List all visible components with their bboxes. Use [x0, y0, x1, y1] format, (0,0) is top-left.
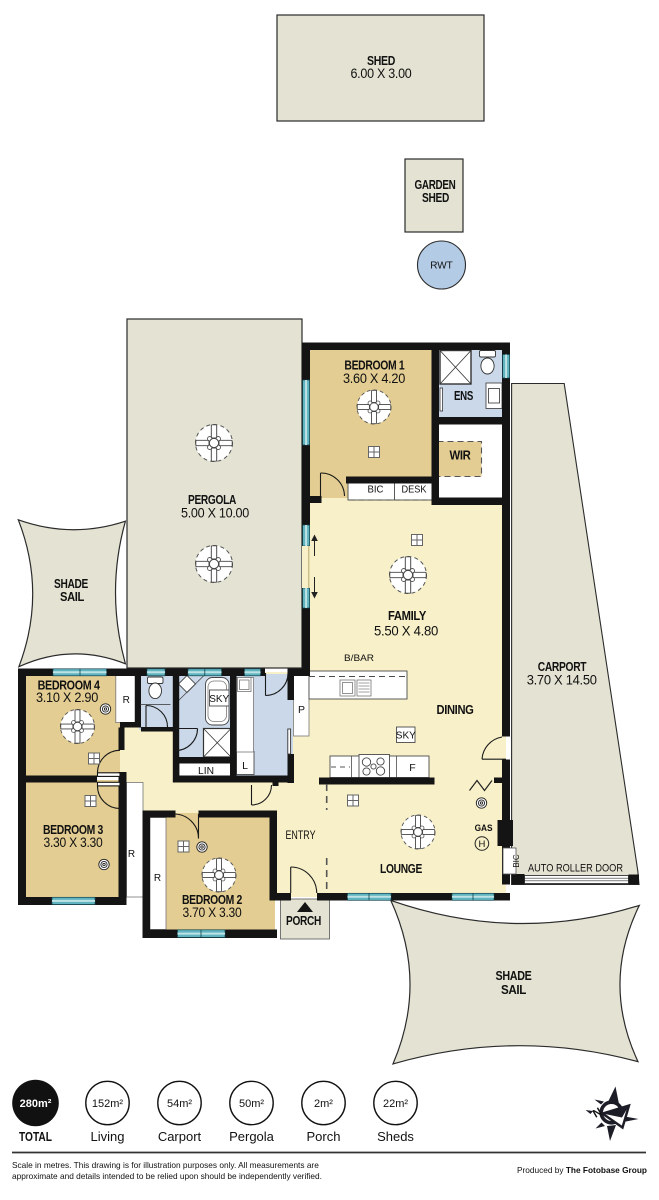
- svg-text:3.60 X 4.20: 3.60 X 4.20: [343, 371, 405, 386]
- svg-text:50m²: 50m²: [239, 1098, 264, 1110]
- svg-text:AUTO ROLLER DOOR: AUTO ROLLER DOOR: [528, 863, 623, 875]
- svg-text:ENS: ENS: [454, 388, 474, 403]
- svg-text:H: H: [478, 839, 485, 850]
- svg-text:280m²: 280m²: [20, 1098, 52, 1110]
- svg-text:SAIL: SAIL: [501, 982, 526, 997]
- svg-text:R: R: [123, 695, 130, 706]
- svg-text:2m²: 2m²: [314, 1098, 333, 1110]
- svg-text:6.00 X 3.00: 6.00 X 3.00: [351, 66, 412, 81]
- svg-text:LIN: LIN: [198, 765, 214, 777]
- svg-text:Carport: Carport: [158, 1129, 202, 1144]
- svg-text:Living: Living: [91, 1129, 125, 1144]
- svg-text:BIC: BIC: [368, 484, 384, 496]
- svg-text:F: F: [409, 762, 415, 774]
- svg-text:RWT: RWT: [430, 261, 453, 272]
- svg-text:3.30 X 3.30: 3.30 X 3.30: [44, 835, 103, 850]
- svg-text:R: R: [128, 849, 135, 860]
- svg-text:FAMILY: FAMILY: [388, 608, 427, 623]
- svg-text:TOTAL: TOTAL: [19, 1130, 52, 1144]
- svg-text:SHED: SHED: [422, 190, 449, 205]
- svg-text:BIC: BIC: [512, 854, 521, 868]
- svg-text:DINING: DINING: [437, 702, 474, 717]
- svg-text:SAIL: SAIL: [60, 589, 84, 604]
- svg-text:ENTRY: ENTRY: [286, 828, 316, 842]
- svg-text:Pergola: Pergola: [229, 1129, 275, 1144]
- svg-text:SHADE: SHADE: [496, 968, 533, 983]
- svg-text:SKY: SKY: [209, 694, 229, 705]
- svg-text:L: L: [242, 760, 248, 772]
- svg-text:Porch: Porch: [307, 1129, 341, 1144]
- svg-text:5.00 X 10.00: 5.00 X 10.00: [181, 506, 249, 521]
- svg-text:R: R: [154, 873, 161, 884]
- svg-text:3.70 X 14.50: 3.70 X 14.50: [527, 673, 597, 688]
- svg-text:SKY: SKY: [396, 731, 416, 742]
- svg-text:Sheds: Sheds: [377, 1129, 414, 1144]
- svg-text:P: P: [298, 704, 305, 716]
- svg-text:B/BAR: B/BAR: [344, 653, 374, 664]
- svg-text:approximate and details intend: approximate and details intended to be r…: [12, 1171, 322, 1181]
- svg-text:152m²: 152m²: [92, 1098, 124, 1110]
- svg-text:DESK: DESK: [402, 484, 427, 496]
- svg-text:GAS: GAS: [475, 823, 493, 834]
- svg-text:22m²: 22m²: [383, 1098, 408, 1110]
- svg-text:PORCH: PORCH: [286, 913, 321, 928]
- svg-text:54m²: 54m²: [167, 1098, 192, 1110]
- svg-text:WIR: WIR: [450, 448, 472, 463]
- svg-text:LOUNGE: LOUNGE: [380, 861, 423, 876]
- svg-text:3.10 X 2.90: 3.10 X 2.90: [36, 690, 98, 705]
- svg-text:Produced by The Fotobase Group: Produced by The Fotobase Group: [517, 1165, 647, 1175]
- svg-text:5.50 X 4.80: 5.50 X 4.80: [374, 624, 438, 639]
- svg-text:3.70 X 3.30: 3.70 X 3.30: [183, 905, 242, 920]
- svg-text:Scale in metres. This drawing: Scale in metres. This drawing is for ill…: [12, 1160, 319, 1170]
